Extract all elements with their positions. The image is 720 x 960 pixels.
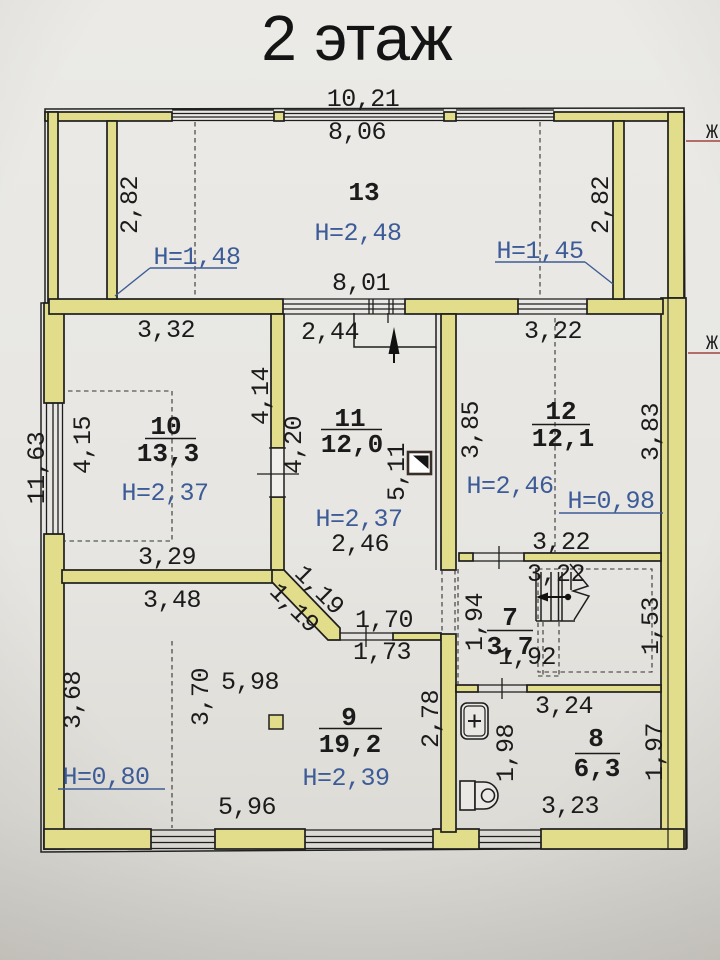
svg-text:12,1: 12,1	[532, 424, 594, 454]
svg-text:4,20: 4,20	[280, 416, 309, 474]
svg-text:1,97: 1,97	[641, 723, 670, 781]
svg-text:12: 12	[545, 397, 576, 427]
svg-text:11,63: 11,63	[23, 432, 52, 505]
svg-text:3,24: 3,24	[535, 692, 593, 721]
svg-text:2 этаж: 2 этаж	[261, 2, 453, 74]
svg-text:13,3: 13,3	[137, 439, 199, 469]
svg-text:2,82: 2,82	[116, 176, 145, 234]
svg-text:8,06: 8,06	[328, 118, 386, 147]
svg-text:3,48: 3,48	[143, 586, 201, 615]
svg-text:2,46: 2,46	[331, 530, 389, 559]
svg-text:3,83: 3,83	[637, 403, 666, 461]
svg-text:3,85: 3,85	[457, 401, 486, 459]
svg-text:Н=2,46: Н=2,46	[466, 472, 553, 501]
svg-text:Ж: Ж	[706, 333, 718, 356]
svg-text:3,68: 3,68	[59, 671, 88, 729]
svg-text:2,82: 2,82	[587, 176, 616, 234]
svg-text:3,70: 3,70	[187, 668, 216, 726]
svg-text:7: 7	[502, 603, 518, 633]
svg-text:3,22: 3,22	[527, 560, 585, 589]
svg-text:Н=2,37: Н=2,37	[121, 479, 208, 508]
svg-text:5,98: 5,98	[221, 668, 279, 697]
svg-text:4,14: 4,14	[247, 367, 276, 425]
svg-text:8: 8	[588, 724, 604, 754]
svg-text:13: 13	[348, 178, 379, 208]
svg-text:2,44: 2,44	[301, 318, 359, 347]
svg-text:12,0: 12,0	[321, 430, 383, 460]
svg-text:5,96: 5,96	[218, 793, 276, 822]
svg-text:1,70: 1,70	[355, 606, 413, 635]
svg-text:1,73: 1,73	[353, 638, 411, 667]
svg-text:1,92: 1,92	[498, 643, 556, 672]
svg-text:Н=2,48: Н=2,48	[314, 219, 401, 248]
svg-text:4,15: 4,15	[69, 416, 98, 474]
svg-text:3,29: 3,29	[138, 543, 196, 572]
svg-text:Н=0,80: Н=0,80	[62, 763, 149, 792]
svg-text:8,01: 8,01	[332, 269, 390, 298]
svg-text:Н=0,98: Н=0,98	[567, 487, 654, 516]
svg-text:3,23: 3,23	[541, 792, 599, 821]
svg-text:10: 10	[150, 412, 181, 442]
svg-text:10,21: 10,21	[327, 85, 400, 114]
svg-text:3,22: 3,22	[532, 528, 590, 557]
svg-text:19,2: 19,2	[319, 730, 381, 760]
svg-text:6,3: 6,3	[574, 754, 621, 784]
svg-text:2,78: 2,78	[417, 690, 446, 748]
svg-text:Н=2,39: Н=2,39	[302, 764, 389, 793]
svg-text:3,22: 3,22	[524, 317, 582, 346]
svg-text:1,53: 1,53	[637, 597, 666, 655]
svg-text:5,11: 5,11	[383, 443, 412, 501]
svg-text:Ж: Ж	[706, 122, 718, 145]
svg-text:1,98: 1,98	[492, 724, 521, 782]
svg-text:3,32: 3,32	[137, 316, 195, 345]
